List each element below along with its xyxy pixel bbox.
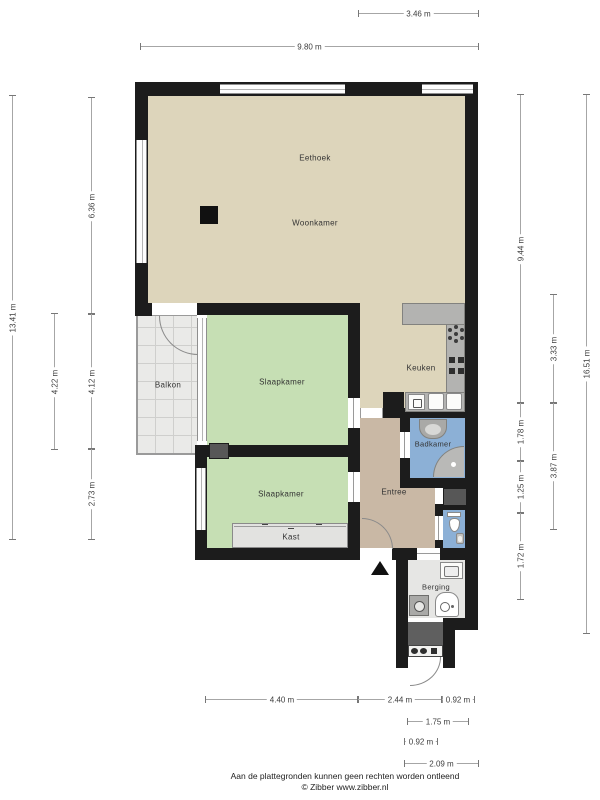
door-leaf-slaapkamer-1 — [353, 398, 354, 428]
fountain-bowl — [458, 536, 462, 542]
window-top-large — [220, 84, 345, 94]
meter-icon — [411, 648, 418, 654]
dim-label: 3.46 m — [403, 10, 433, 19]
entrance-arrow-icon — [371, 561, 389, 575]
dim-label: 4.22 m — [51, 366, 60, 396]
footer-disclaimer: Aan de plattegronden kunnen geen rechten… — [95, 771, 595, 782]
meter-panel — [408, 645, 443, 657]
dim-label: 3.33 m — [550, 334, 559, 364]
wall-berging-bottom — [443, 618, 478, 630]
dim-label: 4.40 m — [267, 696, 297, 705]
label-berging: Berging — [422, 583, 450, 592]
washing-machine-icon — [409, 595, 429, 616]
floor-entree-upper — [360, 418, 400, 488]
kast-door-tick — [316, 524, 322, 525]
wall-kitchen-stub — [383, 392, 404, 418]
dim-right-1-25: 1.25 m — [517, 460, 524, 514]
wall-porch-left — [396, 618, 408, 668]
kast-door-tick — [288, 528, 294, 529]
dim-top-9-80: 9.80 m — [140, 43, 479, 50]
dim-label: 0.92 m — [443, 696, 473, 705]
boiler-dial — [440, 602, 450, 612]
footer-credit: © Zibber www.zibber.nl — [95, 782, 595, 793]
dim-label: 2.09 m — [426, 760, 456, 769]
dim-left-2-73: 2.73 m — [88, 448, 95, 540]
door-gap-balcony — [152, 303, 197, 316]
dim-label: 0.92 m — [406, 738, 436, 747]
label-badkamer: Badkamer — [415, 440, 452, 449]
kitchen-sink-icon — [446, 393, 462, 410]
washing-machine-drum — [414, 601, 425, 612]
dishwasher-glyph — [413, 399, 422, 408]
window-top-small — [422, 84, 473, 94]
dim-label: 9.44 m — [517, 234, 526, 264]
footer: Aan de plattegronden kunnen geen rechten… — [95, 771, 595, 792]
dim-label: 4.12 m — [88, 366, 97, 396]
dim-label: 16.51 m — [583, 347, 592, 382]
label-eethoek: Eethoek — [299, 154, 330, 163]
kast-sliding-door — [234, 526, 346, 527]
porch-recess — [408, 622, 443, 645]
dim-right-3-33: 3.33 m — [550, 294, 557, 404]
stove-icon — [454, 332, 458, 336]
label-woonkamer: Woonkamer — [292, 219, 338, 228]
label-kast: Kast — [282, 533, 299, 542]
meter-icon — [420, 648, 427, 654]
kitchen-sink-icon — [428, 393, 444, 410]
dim-bottom-2-44: 2.44 m — [357, 696, 443, 703]
dim-left-4-12: 4.12 m — [88, 313, 95, 450]
window-left — [136, 140, 147, 263]
door-leaf-badkamer — [404, 432, 405, 458]
dim-right-1-72: 1.72 m — [517, 512, 524, 600]
dim-right-16-51: 16.51 m — [583, 94, 590, 634]
column — [200, 206, 218, 224]
dim-right-9-44: 9.44 m — [517, 94, 524, 404]
wall-bedroom2-bottom — [195, 548, 360, 560]
dim-right-1-78: 1.78 m — [517, 402, 524, 462]
fountain-sink-icon — [456, 533, 464, 544]
dim-label: 13.41 m — [9, 300, 18, 335]
window-balcony-bedroom — [197, 318, 207, 441]
label-entree: Entree — [381, 488, 406, 497]
dim-bottom-1-75: 1.75 m — [407, 718, 469, 725]
meter-icon — [431, 648, 437, 654]
dim-bottom-4-40: 4.40 m — [205, 696, 359, 703]
door-gap-toilet — [435, 516, 443, 540]
shower-head — [451, 462, 456, 467]
dim-top-3-46: 3.46 m — [358, 10, 479, 17]
passage-woonkamer-entree — [360, 408, 383, 418]
dim-bottom-2-09: 2.09 m — [404, 760, 479, 767]
floor-woonkamer — [148, 96, 465, 315]
label-slaapkamer-2: Slaapkamer — [258, 490, 304, 499]
dishwasher-icon — [408, 394, 425, 410]
dim-left-6-36: 6.36 m — [88, 97, 95, 315]
door-leaf-slaapkamer-2 — [353, 472, 354, 502]
label-keuken: Keuken — [407, 364, 436, 373]
door-leaf-berging — [417, 553, 440, 554]
wall-badkamer-bottom — [400, 478, 478, 488]
dim-label: 1.25 m — [517, 472, 526, 502]
porch-door-arc — [410, 657, 441, 686]
door-gap-badkamer — [400, 432, 410, 458]
dim-label: 3.87 m — [550, 451, 559, 481]
cooktop-icon — [449, 357, 455, 363]
dim-bottom-0-92-b: 0.92 m — [404, 738, 438, 745]
shaft-bedroom-corner — [209, 443, 229, 459]
label-slaapkamer-1: Slaapkamer — [259, 378, 305, 387]
wall-spine — [348, 315, 360, 548]
door-leaf-toilet — [438, 516, 439, 540]
dim-right-3-87: 3.87 m — [550, 402, 557, 530]
shaft-bathroom — [443, 488, 467, 506]
front-door-gap — [360, 548, 392, 560]
door-gap-berging — [417, 548, 440, 560]
door-gap-slaapkamer-1 — [348, 398, 360, 428]
label-balkon: Balkon — [155, 381, 181, 390]
utility-sink-bowl — [444, 566, 459, 577]
dim-left-13-41: 13.41 m — [9, 95, 16, 540]
kast-door-tick — [262, 524, 268, 525]
dim-label: 1.72 m — [517, 541, 526, 571]
floorplan-page: { "rooms": { "eethoek": "Eethoek", "woon… — [0, 0, 600, 800]
utility-sink-icon — [440, 562, 463, 579]
kitchen-counter-top — [402, 303, 465, 325]
dim-label: 6.36 m — [88, 191, 97, 221]
boiler-dot — [451, 605, 454, 608]
boiler-icon — [435, 592, 459, 617]
dim-label: 1.78 m — [517, 417, 526, 447]
dim-left-4-22: 4.22 m — [51, 313, 58, 450]
window-bedroom2 — [196, 468, 206, 530]
door-gap-slaapkamer-2 — [348, 472, 360, 502]
dim-label: 9.80 m — [294, 43, 324, 52]
toilet-tank — [447, 512, 461, 517]
dim-label: 2.44 m — [385, 696, 415, 705]
washbasin-icon — [419, 419, 447, 439]
dim-bottom-0-92-a: 0.92 m — [441, 696, 475, 703]
wall-living-bedroom — [197, 303, 360, 315]
washbasin-bowl — [425, 424, 441, 435]
wall-balcony-corner — [135, 303, 152, 316]
dim-label: 2.73 m — [88, 479, 97, 509]
dim-label: 1.75 m — [423, 718, 453, 727]
